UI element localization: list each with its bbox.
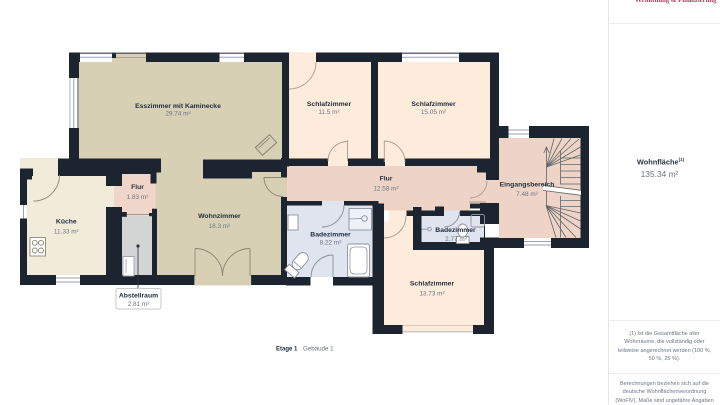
svg-text:Esszimmer mit Kaminecke: Esszimmer mit Kaminecke bbox=[135, 103, 221, 110]
svg-text:18.3 m²: 18.3 m² bbox=[209, 223, 231, 230]
svg-text:Schlafzimmer: Schlafzimmer bbox=[410, 280, 455, 287]
svg-text:29.74 m²: 29.74 m² bbox=[165, 111, 190, 118]
svg-text:Flur: Flur bbox=[380, 176, 393, 183]
svg-text:Badezimmer: Badezimmer bbox=[310, 232, 351, 239]
svg-text:7.48 m²: 7.48 m² bbox=[516, 191, 538, 198]
svg-text:Schlafzimmer: Schlafzimmer bbox=[307, 101, 352, 108]
svg-text:1.83 m²: 1.83 m² bbox=[127, 194, 149, 201]
svg-text:2.77 m²: 2.77 m² bbox=[445, 236, 467, 243]
svg-text:Wohnzimmer: Wohnzimmer bbox=[198, 213, 241, 220]
svg-text:Etage 1: Etage 1 bbox=[276, 347, 298, 353]
svg-text:Küche: Küche bbox=[56, 219, 77, 226]
svg-text:13.73 m²: 13.73 m² bbox=[419, 291, 444, 298]
svg-text:Schlafzimmer: Schlafzimmer bbox=[411, 101, 456, 108]
svg-text:11.5 m²: 11.5 m² bbox=[318, 109, 339, 116]
svg-text:Flur: Flur bbox=[131, 184, 144, 191]
svg-text:Badezimmer: Badezimmer bbox=[435, 227, 476, 234]
svg-text:15.05 m²: 15.05 m² bbox=[421, 109, 446, 116]
svg-text:8.22 m²: 8.22 m² bbox=[320, 240, 342, 247]
svg-text:12.58 m²: 12.58 m² bbox=[373, 186, 398, 193]
svg-text:2.81 m²: 2.81 m² bbox=[128, 301, 150, 308]
svg-text:Gebäude 1: Gebäude 1 bbox=[303, 346, 334, 353]
svg-text:Eingangsbereich: Eingangsbereich bbox=[500, 182, 555, 189]
svg-text:11.33 m²: 11.33 m² bbox=[54, 229, 79, 236]
svg-text:Abstellraum: Abstellraum bbox=[119, 293, 158, 300]
